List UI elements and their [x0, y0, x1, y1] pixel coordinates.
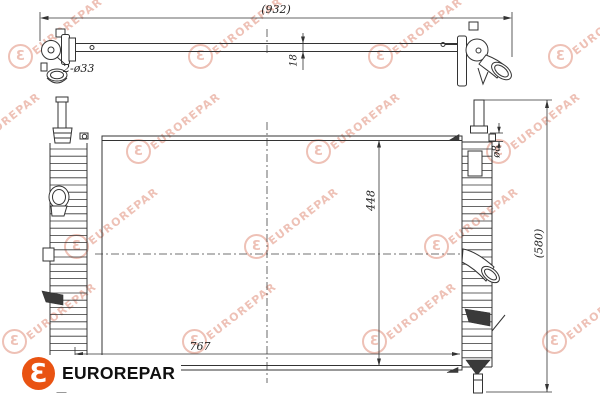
top-view-core-band [74, 43, 464, 52]
right-mount-bracket [465, 309, 490, 326]
right-mount-pin [474, 374, 483, 393]
dim-bleed-port-label: ø8 [492, 140, 503, 164]
radiator-drawing-page: ƐEUROREPARƐEUROREPARƐEUROREPARƐEUROREPAR… [0, 0, 600, 400]
dim-overall-width [40, 12, 512, 57]
left-tank [42, 97, 87, 392]
dim-core-width-label: 767 [180, 340, 220, 353]
filler-pipe [474, 100, 484, 127]
left-tank-ribs [50, 149, 87, 358]
dim-core-height-label: 448 [365, 186, 378, 216]
core [80, 133, 462, 373]
dim-inlet-ports-label: 2-ø33 [63, 62, 94, 75]
dim-core-thickness-label: 18 [289, 51, 300, 71]
dim-core-height [377, 140, 381, 366]
brand-logo: Ɛ EUROREPAR [20, 355, 181, 392]
dim-overall-height-label: (580) [533, 224, 546, 264]
brand-name: EUROREPAR [62, 363, 175, 384]
top-view [40, 12, 515, 86]
front-view [42, 97, 552, 393]
radiator-line-drawing [0, 0, 600, 400]
top-view-right-fitting [458, 22, 515, 86]
dim-overall-width-label: (932) [246, 3, 306, 16]
eurorepar-logo-icon: Ɛ [22, 357, 55, 390]
